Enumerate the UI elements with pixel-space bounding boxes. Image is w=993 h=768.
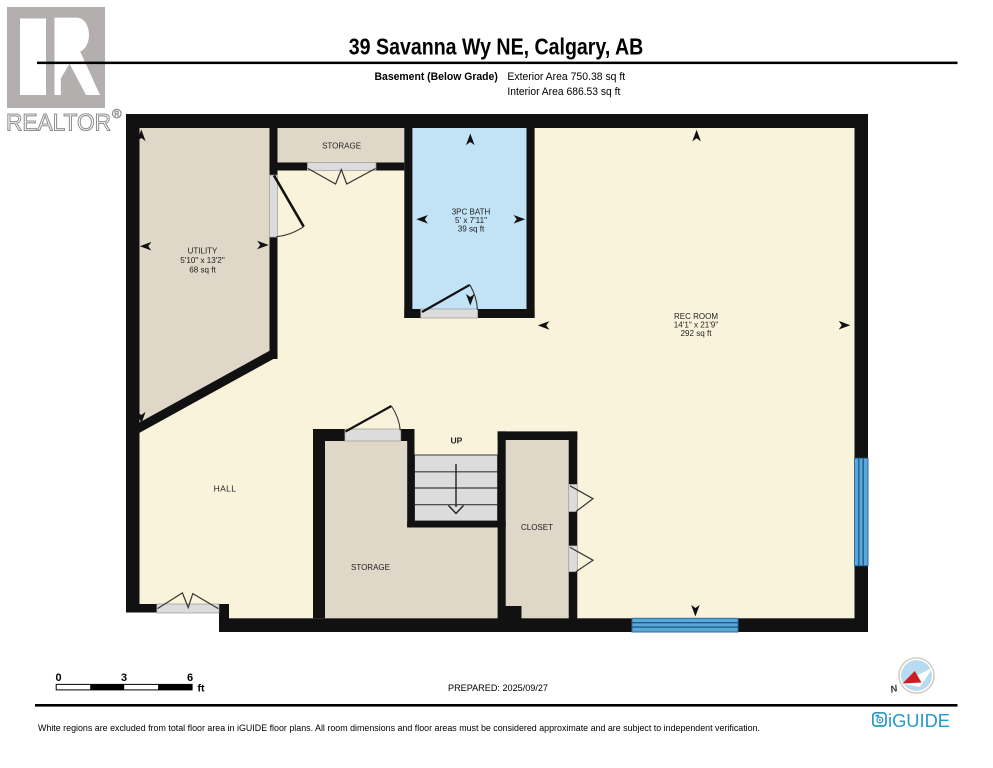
- svg-text:iGUIDE: iGUIDE: [888, 710, 950, 731]
- svg-text:UP: UP: [450, 436, 462, 446]
- svg-text:White regions are excluded fro: White regions are excluded from total fl…: [38, 723, 760, 733]
- svg-text:6: 6: [187, 672, 193, 684]
- svg-text:3: 3: [121, 672, 127, 684]
- svg-text:CLOSET: CLOSET: [521, 523, 553, 532]
- svg-text:5'10" x 13'2": 5'10" x 13'2": [180, 256, 225, 265]
- svg-text:39 sq ft: 39 sq ft: [458, 225, 485, 234]
- svg-text:HALL: HALL: [214, 484, 237, 494]
- svg-text:REALTOR: REALTOR: [6, 110, 111, 137]
- svg-text:UTILITY: UTILITY: [188, 247, 218, 256]
- svg-text:292 sq ft: 292 sq ft: [680, 329, 712, 338]
- svg-text:0: 0: [55, 672, 61, 684]
- svg-text:Basement (Below Grade): Basement (Below Grade): [375, 71, 499, 83]
- svg-text:ft: ft: [198, 683, 205, 695]
- svg-text:®: ®: [112, 106, 122, 121]
- svg-text:68 sq ft: 68 sq ft: [189, 266, 216, 275]
- svg-text:Exterior Area 750.38 sq ft: Exterior Area 750.38 sq ft: [507, 71, 626, 83]
- svg-text:PREPARED: 2025/09/27: PREPARED: 2025/09/27: [448, 683, 548, 694]
- svg-text:Interior Area 686.53 sq ft: Interior Area 686.53 sq ft: [507, 86, 621, 98]
- svg-text:STORAGE: STORAGE: [351, 563, 390, 572]
- svg-text:STORAGE: STORAGE: [322, 142, 361, 151]
- svg-text:39 Savanna Wy NE, Calgary, AB: 39 Savanna Wy NE, Calgary, AB: [349, 34, 644, 60]
